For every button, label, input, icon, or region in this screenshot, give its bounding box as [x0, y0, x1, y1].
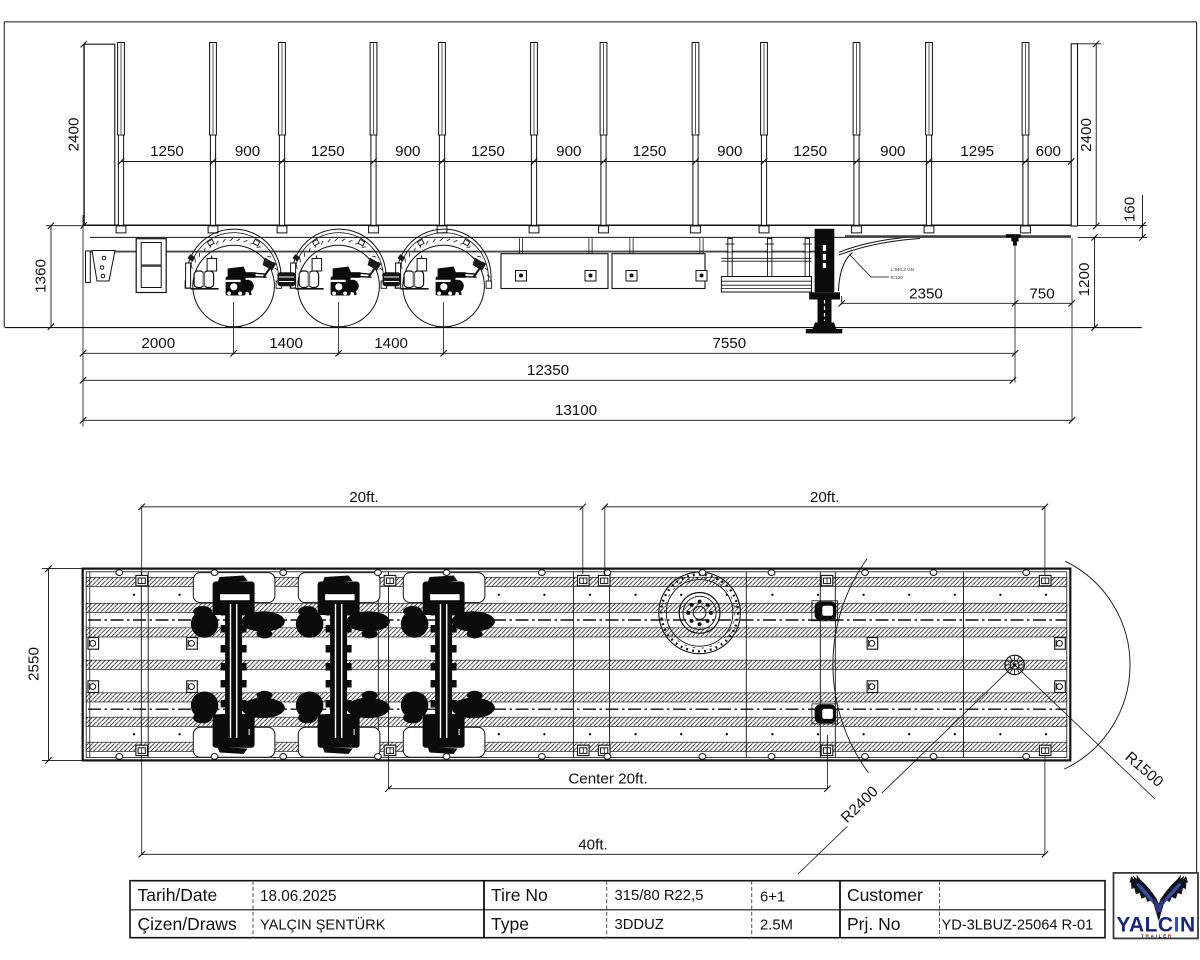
svg-text:1250: 1250	[471, 143, 505, 160]
svg-text:160: 160	[1122, 197, 1139, 222]
svg-text:YALÇIN ŞENTÜRK: YALÇIN ŞENTÜRK	[260, 915, 386, 933]
svg-text:Çizen/Draws: Çizen/Draws	[138, 914, 237, 934]
svg-text:1400: 1400	[269, 335, 303, 352]
svg-text:2400: 2400	[1078, 118, 1095, 152]
svg-text:2400: 2400	[66, 118, 83, 152]
svg-text:12350: 12350	[527, 362, 569, 379]
svg-text:1360: 1360	[33, 259, 50, 293]
svg-text:YD-3LBUZ-25064 R-01: YD-3LBUZ-25064 R-01	[942, 917, 1094, 933]
svg-text:2350: 2350	[909, 285, 943, 302]
svg-text:900: 900	[235, 143, 260, 160]
svg-text:2000: 2000	[141, 335, 175, 352]
svg-text:1250: 1250	[150, 143, 184, 160]
svg-text:L:940.2 GN: L:940.2 GN	[891, 267, 915, 272]
svg-text:315/80 R22,5: 315/80 R22,5	[615, 888, 704, 904]
svg-text:R:120: R:120	[891, 275, 904, 280]
svg-text:600: 600	[1036, 143, 1061, 160]
svg-text:YALCIN: YALCIN	[1116, 914, 1195, 937]
svg-text:1250: 1250	[793, 143, 827, 160]
svg-text:Type: Type	[491, 914, 529, 934]
svg-text:Tarih/Date: Tarih/Date	[138, 885, 218, 905]
svg-text:20ft.: 20ft.	[810, 489, 840, 506]
svg-text:20ft.: 20ft.	[349, 489, 379, 506]
svg-text:6+1: 6+1	[760, 889, 785, 905]
svg-text:13100: 13100	[555, 402, 597, 419]
svg-text:750: 750	[1029, 285, 1054, 302]
svg-text:900: 900	[717, 143, 742, 160]
svg-text:Center 20ft.: Center 20ft.	[568, 771, 647, 788]
svg-text:3DDUZ: 3DDUZ	[615, 917, 664, 933]
svg-text:Tire No: Tire No	[491, 885, 548, 905]
svg-text:900: 900	[556, 143, 581, 160]
svg-text:1295: 1295	[960, 143, 994, 160]
svg-text:18.06.2025: 18.06.2025	[260, 888, 337, 905]
svg-text:2550: 2550	[26, 647, 43, 681]
svg-text:7550: 7550	[712, 335, 746, 352]
svg-text:1200: 1200	[1076, 263, 1093, 297]
svg-text:1400: 1400	[374, 335, 408, 352]
svg-text:900: 900	[880, 143, 905, 160]
svg-text:Prj. No: Prj. No	[847, 914, 900, 934]
svg-text:40ft.: 40ft.	[578, 836, 608, 853]
svg-text:1250: 1250	[633, 143, 667, 160]
svg-text:2.5M: 2.5M	[760, 918, 793, 934]
svg-text:Customer: Customer	[847, 885, 923, 905]
svg-text:1250: 1250	[311, 143, 345, 160]
svg-text:TRAILER: TRAILER	[1141, 934, 1173, 940]
svg-text:900: 900	[395, 143, 420, 160]
